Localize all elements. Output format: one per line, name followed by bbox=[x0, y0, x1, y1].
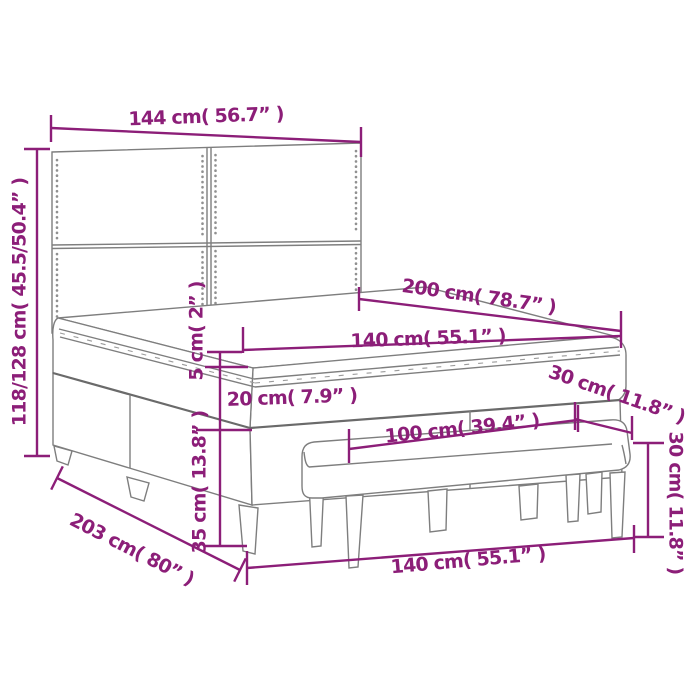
mattress-height-label: 20 cm( 7.9” ) bbox=[226, 384, 357, 411]
bench-leg bbox=[610, 472, 625, 538]
headboard-height-label: 118/128 cm( 45.5/50.4” ) bbox=[9, 178, 31, 427]
bench-leg bbox=[566, 474, 580, 522]
bed-leg bbox=[127, 477, 149, 501]
bench bbox=[302, 420, 630, 568]
base-height-label: 35 cm( 13.8” ) bbox=[189, 410, 211, 553]
bed-leg bbox=[428, 489, 447, 532]
total-length-label: 203 cm( 80” ) bbox=[66, 509, 198, 591]
dimension-headboard-height: 118/128 cm( 45.5/50.4” ) bbox=[9, 149, 50, 456]
bed-leg bbox=[586, 472, 602, 514]
diagram-canvas: 144 cm( 56.7” ) 118/128 cm( 45.5/50.4” )… bbox=[0, 0, 700, 700]
bed-leg bbox=[519, 484, 538, 520]
dimension-bench-height: 30 cm( 11.8” ) bbox=[633, 432, 686, 575]
headboard-width-label: 144 cm( 56.7” ) bbox=[128, 103, 284, 130]
dimension-bed-width: 140 cm( 55.1” ) bbox=[247, 525, 634, 585]
bench-height-label: 30 cm( 11.8” ) bbox=[664, 432, 686, 575]
bench-leg bbox=[346, 495, 363, 568]
topper-height-label: 5 cm( 2” ) bbox=[186, 281, 208, 380]
bed-width-label: 140 cm( 55.1” ) bbox=[390, 543, 547, 578]
bed-dimension-diagram: 144 cm( 56.7” ) 118/128 cm( 45.5/50.4” )… bbox=[0, 0, 700, 700]
